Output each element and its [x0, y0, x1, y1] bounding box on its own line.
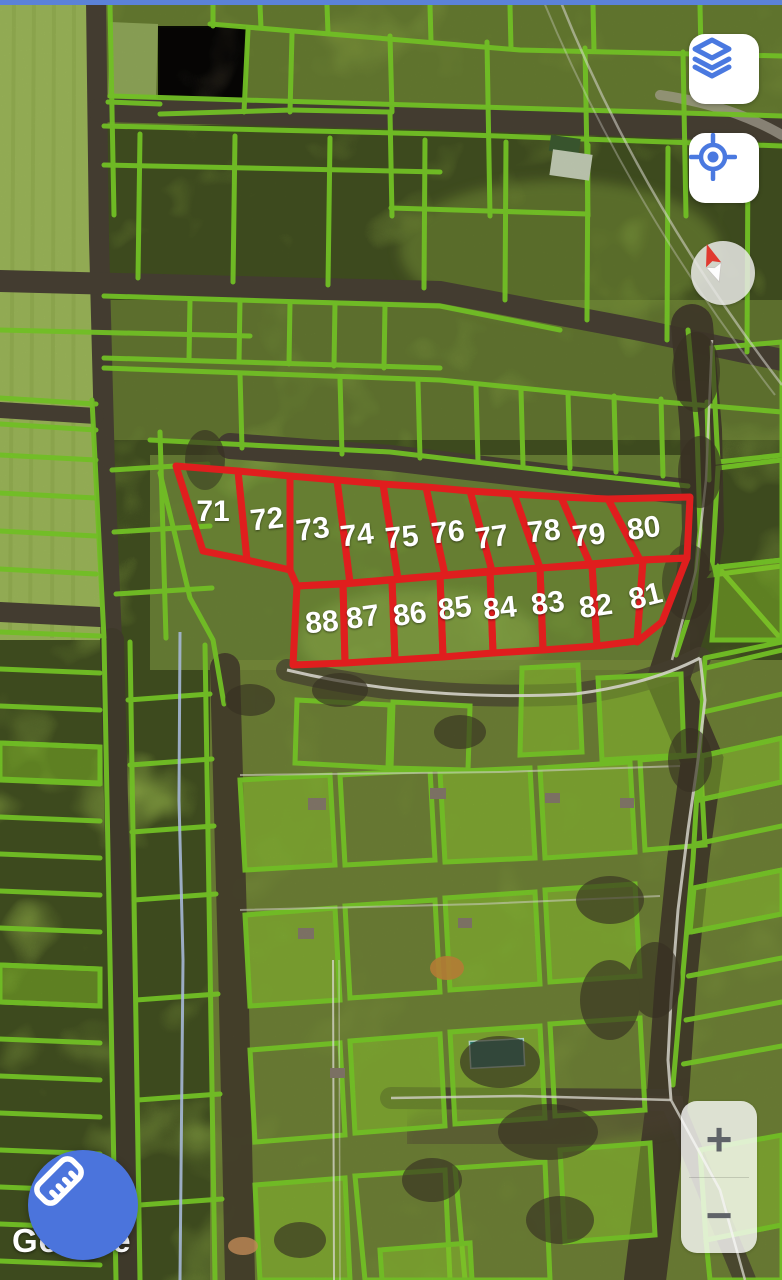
measure-button[interactable] — [28, 1150, 138, 1260]
my-location-icon — [689, 133, 737, 181]
parcel-number-label: 85 — [436, 590, 474, 627]
parcel-number-label: 83 — [529, 585, 567, 622]
parcel-number-label: 86 — [391, 596, 429, 633]
parcel-number-label: 74 — [339, 517, 376, 553]
parcel-number-label: 73 — [294, 511, 332, 548]
layers-icon — [689, 34, 735, 80]
parcel-number-label: 78 — [526, 513, 563, 549]
map-app-screen: 717273747576777879808182838485868788 — [0, 0, 782, 1280]
map-canvas[interactable]: 717273747576777879808182838485868788 — [0, 0, 782, 1280]
zoom-in-button[interactable]: + — [681, 1101, 757, 1177]
parcel-number-label: 82 — [577, 588, 615, 625]
parcel-number-label: 88 — [304, 605, 340, 641]
parcel-number-label: 76 — [430, 514, 467, 550]
parcel-number-label: 71 — [196, 495, 229, 528]
zoom-control: + − — [681, 1101, 757, 1253]
top-edge-line — [0, 0, 782, 5]
layers-button[interactable] — [689, 34, 759, 104]
parcel-number-label: 77 — [473, 519, 511, 556]
parcel-number-label: 79 — [571, 517, 608, 553]
parcel-number-label: 75 — [384, 519, 421, 555]
compass-button[interactable] — [691, 241, 755, 305]
parcel-number-label: 80 — [625, 510, 663, 547]
zoom-out-button[interactable]: − — [681, 1178, 757, 1254]
parcel-number-label: 72 — [249, 501, 286, 537]
my-location-button[interactable] — [689, 133, 759, 203]
parcel-number-label: 84 — [482, 590, 519, 626]
ruler-icon — [28, 1150, 90, 1212]
parcel-number-label: 87 — [344, 599, 382, 636]
compass-needle-icon — [691, 241, 735, 285]
